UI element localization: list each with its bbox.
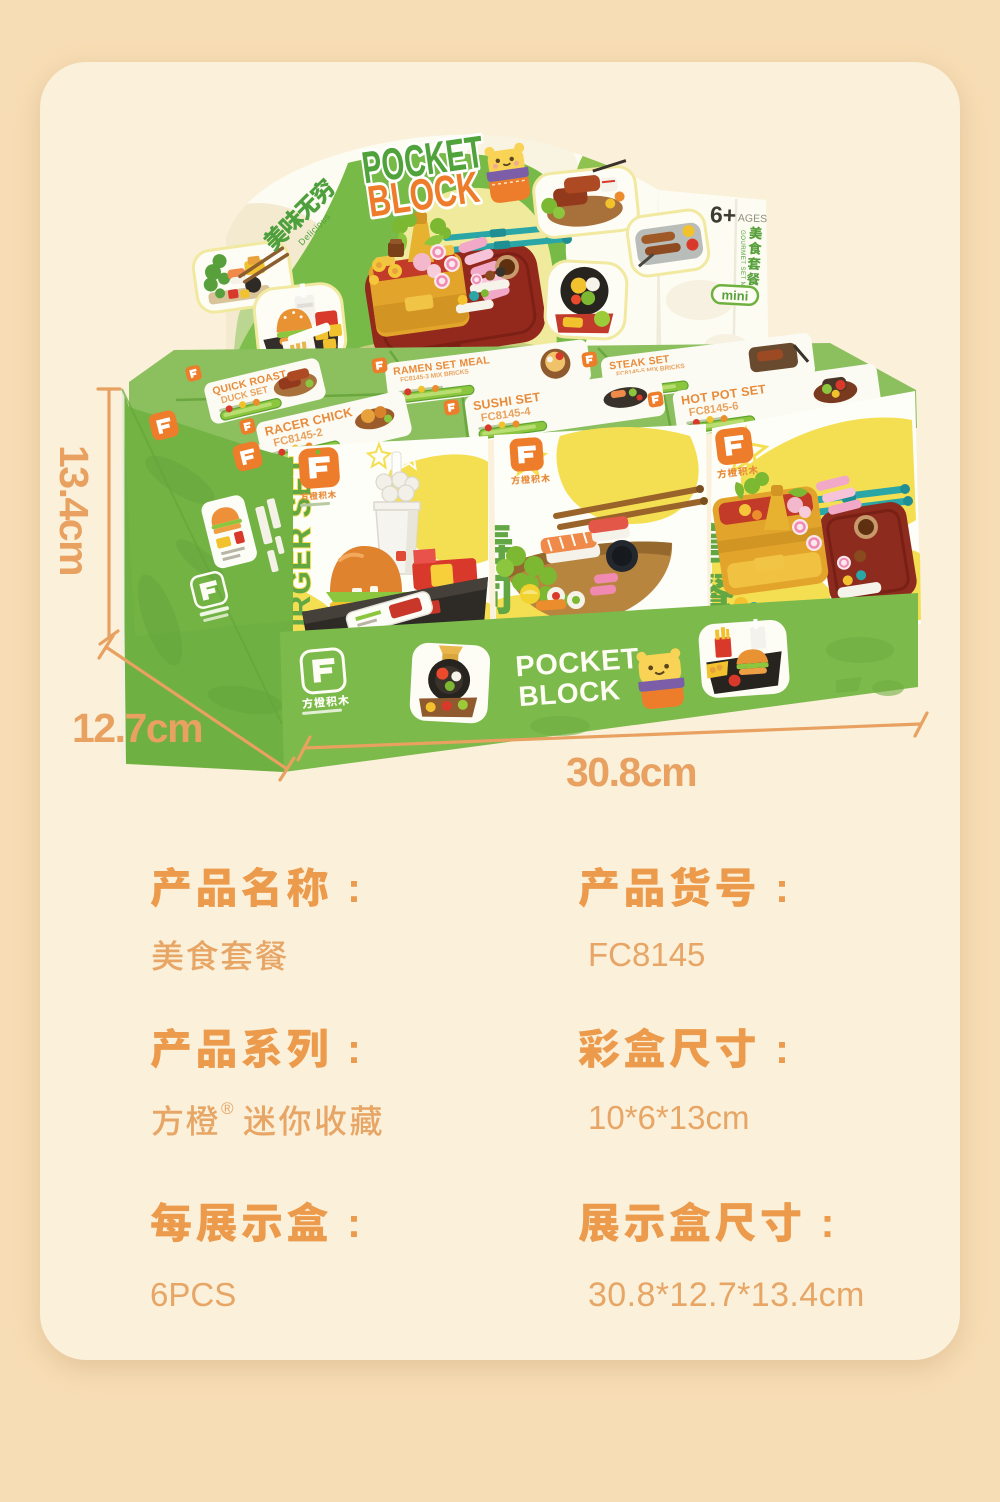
svg-text:12.7cm: 12.7cm (72, 705, 202, 751)
svg-text:13.4cm: 13.4cm (51, 445, 97, 575)
svg-text:6+: 6+ (710, 201, 737, 228)
svg-text:mini: mini (721, 287, 748, 303)
svg-text::: : (775, 1025, 789, 1072)
svg-text:®: ® (221, 1099, 234, 1118)
svg-text:AGES: AGES (738, 212, 768, 225)
svg-text::: : (347, 864, 361, 911)
svg-text::: : (347, 1199, 361, 1246)
svg-text:6PCS: 6PCS (150, 1276, 236, 1313)
svg-text::: : (821, 1199, 835, 1246)
svg-text:FC8145: FC8145 (588, 936, 705, 973)
svg-text::: : (347, 1025, 361, 1072)
svg-text:30.8cm: 30.8cm (566, 749, 696, 795)
svg-text::: : (775, 864, 789, 911)
svg-text:30.8*12.7*13.4cm: 30.8*12.7*13.4cm (588, 1276, 865, 1314)
svg-text:10*6*13cm: 10*6*13cm (588, 1099, 749, 1136)
